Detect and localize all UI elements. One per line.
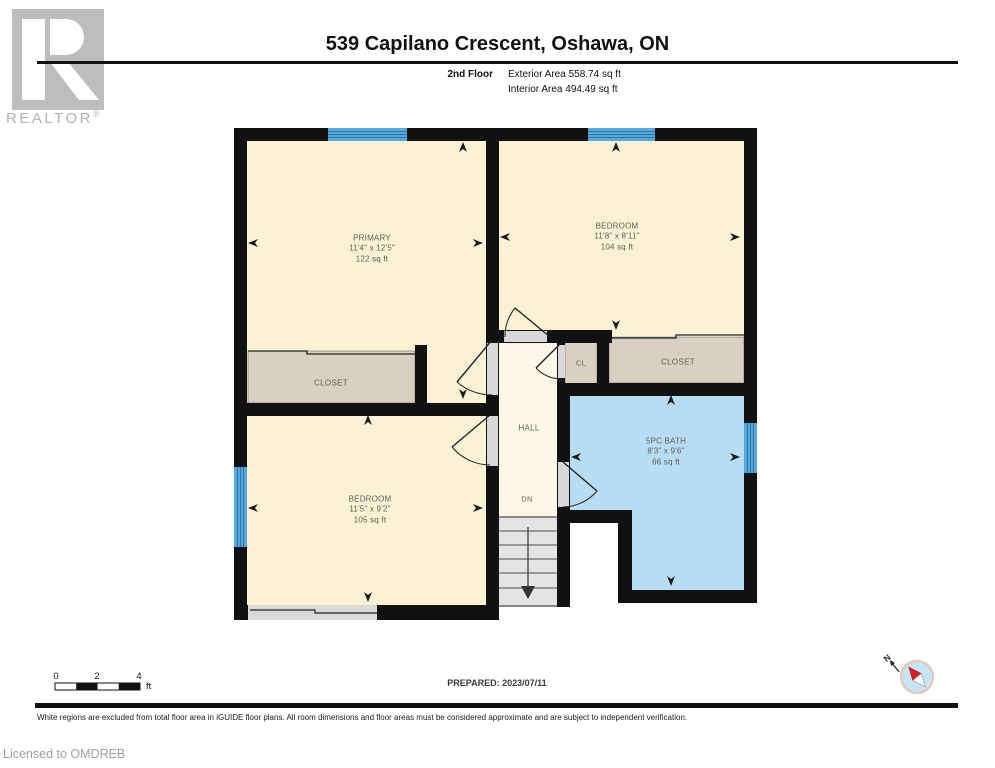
prepared-date: PREPARED: 2023/07/11	[407, 678, 587, 688]
disclaimer-text: White regions are excluded from total fl…	[37, 713, 687, 722]
label-cl: CL	[576, 359, 586, 368]
realtor-text: REALTOR	[6, 110, 93, 127]
room-name: BEDROOM	[594, 221, 639, 231]
exterior-area: Exterior Area 558.74 sq ft	[508, 69, 621, 80]
room-dims: 11'4" x 12'5"	[349, 244, 395, 254]
room-name: 5PC BATH	[646, 436, 686, 446]
page-title: 539 Capilano Crescent, Oshawa, ON	[0, 33, 995, 56]
footer-rule	[35, 703, 958, 708]
scale-2: 2	[94, 671, 99, 682]
bath-floor	[570, 396, 744, 590]
room-label-primary: PRIMARY 11'4" x 12'5" 122 sq ft	[349, 233, 395, 264]
registered-symbol: ®	[93, 109, 100, 119]
room-dims: 11'8" x 8'11"	[594, 232, 639, 242]
scale-0: 0	[53, 671, 58, 682]
realtor-wordmark: REALTOR®	[6, 109, 100, 127]
room-area: 122 sq ft	[349, 254, 395, 264]
license-text: Licensed to OMDREB	[3, 747, 125, 761]
window-top-right	[588, 128, 655, 141]
interior-area: Interior Area 494.49 sq ft	[508, 84, 618, 95]
room-area: 105 sq ft	[349, 515, 392, 525]
room-name: PRIMARY	[349, 233, 395, 243]
floorplan-svg	[0, 0, 995, 768]
room-dims: 8'3" x 9'6"	[646, 447, 686, 457]
room-area: 66 sq ft	[646, 457, 686, 467]
compass-icon	[890, 660, 933, 693]
scale-unit: ft	[146, 681, 151, 692]
closet-left-floor	[248, 351, 415, 403]
title-rule	[37, 61, 958, 64]
label-dn: DN	[521, 495, 532, 504]
window-bath-right	[744, 423, 757, 473]
label-closet-right: CLOSET	[661, 358, 695, 367]
scale-4: 4	[136, 671, 141, 682]
room-name: BEDROOM	[349, 494, 392, 504]
floor-label: 2nd Floor	[407, 69, 493, 80]
room-area: 104 sq ft	[594, 242, 639, 252]
realtor-logo-icon	[12, 9, 104, 110]
lower-edge-band	[248, 605, 377, 620]
room-label-bedroom-top: BEDROOM 11'8" x 8'11" 104 sq ft	[594, 221, 639, 252]
label-closet-left: CLOSET	[314, 379, 348, 388]
scale-bar	[55, 683, 140, 690]
room-label-bedroom-bottom: BEDROOM 11'5" x 9'2" 105 sq ft	[349, 494, 392, 525]
room-label-bath: 5PC BATH 8'3" x 9'6" 66 sq ft	[646, 436, 686, 467]
room-dims: 11'5" x 9'2"	[349, 505, 392, 515]
window-top-left	[328, 128, 407, 141]
window-left	[234, 467, 247, 547]
floorplan-page: 539 Capilano Crescent, Oshawa, ON 2nd Fl…	[0, 0, 995, 768]
label-hall: HALL	[518, 424, 539, 433]
